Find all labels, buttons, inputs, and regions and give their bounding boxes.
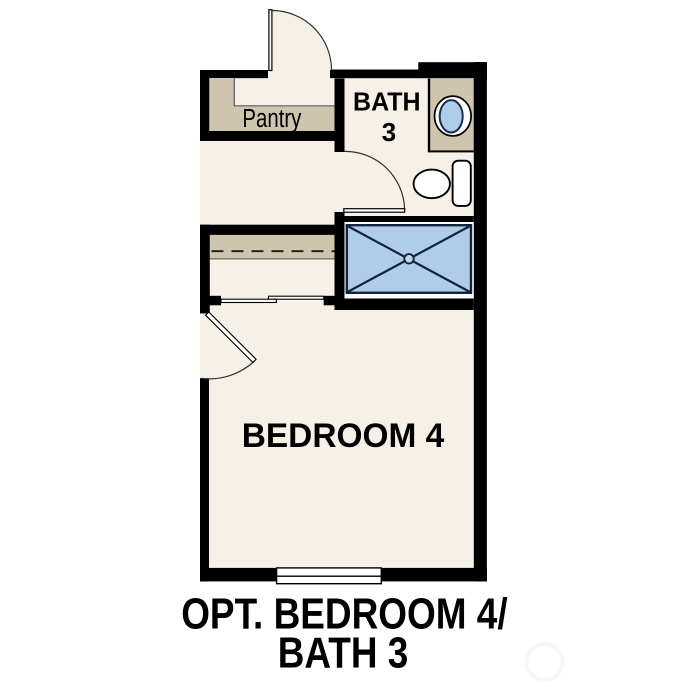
svg-text:BEDROOM 4: BEDROOM 4 (242, 417, 445, 455)
svg-text:BATH: BATH (353, 86, 421, 116)
svg-text:BATH 3: BATH 3 (278, 628, 409, 677)
svg-text:Pantry: Pantry (242, 105, 301, 133)
svg-text:3: 3 (382, 117, 396, 147)
